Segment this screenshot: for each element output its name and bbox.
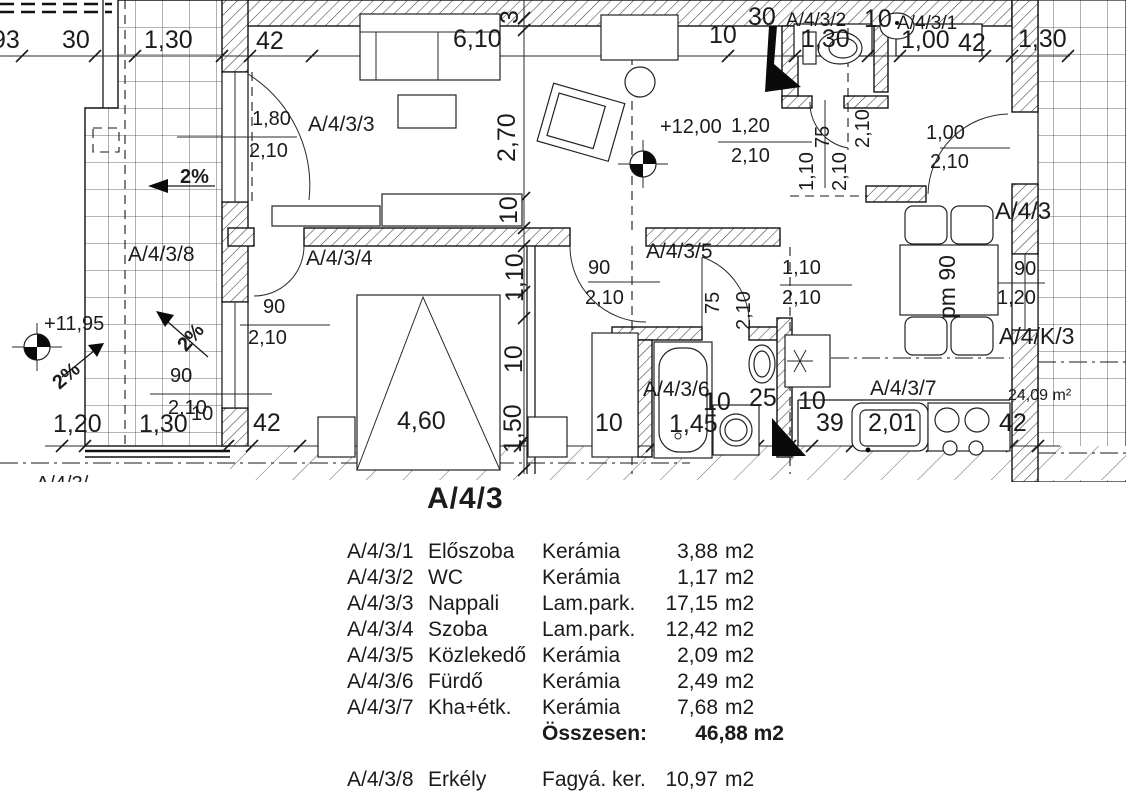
dim-label: 30	[62, 28, 90, 53]
room-label: A/4/3/6	[643, 379, 710, 400]
legend-name: WC	[428, 566, 542, 589]
chair	[951, 317, 993, 355]
legend-name: Közlekedő	[428, 644, 542, 667]
legend-row: A/4/3/3NappaliLam.park.17,15m2	[347, 592, 754, 615]
plant	[625, 67, 655, 97]
dim-label: 10	[502, 345, 527, 373]
dim-label: pm 90	[936, 255, 959, 319]
dim-label: 1,10	[797, 152, 817, 191]
armchair	[537, 83, 625, 161]
dim-label: 25	[749, 386, 777, 411]
cabinet	[601, 15, 678, 60]
legend-total-row: Összesen: 46,88 m2	[347, 722, 784, 745]
dim-label: 2,01	[868, 411, 917, 436]
dim-label: 2,10	[248, 328, 287, 348]
dim-label: 2,10	[830, 152, 850, 191]
legend-area-value: 12,42	[654, 618, 718, 641]
dim-label: 1,30	[144, 28, 193, 53]
dim-label: 42	[999, 411, 1027, 436]
legend-material: Kerámia	[542, 566, 654, 589]
legend-row: A/4/3/1ElőszobaKerámia3,88m2	[347, 540, 754, 563]
room-label: A/4/3/	[36, 474, 88, 482]
legend-area-value: 7,68	[654, 696, 718, 719]
shaft	[592, 333, 638, 457]
chair	[905, 206, 947, 244]
dim-label: 90	[1014, 259, 1036, 279]
legend-total-label: Összesen:	[542, 722, 654, 745]
legend-name: Kha+étk.	[428, 696, 542, 719]
legend-area-unit: m2	[725, 618, 754, 641]
dim-label: 3	[498, 10, 523, 24]
legend-area-value: 17,15	[654, 592, 718, 615]
legend-code: A/4/3/1	[347, 540, 428, 563]
legend-code: A/4/3/7	[347, 696, 428, 719]
legend-material: Lam.park.	[542, 618, 654, 641]
legend-area-unit: m2	[725, 768, 754, 791]
dim-label: 6,10	[453, 27, 502, 52]
dim-label: 1,50	[501, 404, 526, 453]
chair	[951, 206, 993, 244]
legend-area-unit: m2	[725, 566, 754, 589]
dim-label: 1,45	[669, 412, 718, 437]
level-marker	[618, 140, 668, 188]
dim-label: 10	[595, 411, 623, 436]
dim-label: 1,20	[53, 412, 102, 437]
legend-area-unit: m2	[725, 670, 754, 693]
dim-label: 42	[253, 411, 281, 436]
legend-area-unit: m2	[725, 540, 754, 563]
dim-label: 2%	[180, 167, 209, 187]
dim-label: 1,10	[782, 258, 821, 278]
bed	[357, 295, 500, 470]
dim-label: 1,00	[901, 28, 950, 53]
floor-plan: 93301,30426,1033010A/4/3/210A/4/3/11,301…	[0, 0, 1126, 482]
legend-row: A/4/3/8ErkélyFagyá. ker.10,97m2	[347, 768, 754, 791]
floorplan-page: 93301,30426,1033010A/4/3/210A/4/3/11,301…	[0, 0, 1126, 793]
legend-total-value: 46,88 m2	[654, 722, 784, 745]
legend-name	[428, 722, 542, 745]
dim-label: +11,95	[44, 314, 104, 334]
legend-name: Erkély	[428, 768, 542, 791]
legend-row: A/4/3/4SzobaLam.park.12,42m2	[347, 618, 754, 641]
room-label: A/4/3/3	[308, 114, 375, 135]
dim-label: 2,10	[249, 141, 288, 161]
legend-code	[347, 722, 428, 745]
dim-label: 42	[958, 31, 986, 56]
dim-label: 1,10	[503, 253, 528, 302]
legend-material: Lam.park.	[542, 592, 654, 615]
room-label: A/4/3	[995, 200, 1051, 224]
legend-code: A/4/3/5	[347, 644, 428, 667]
legend-area-value: 2,09	[654, 644, 718, 667]
dim-label: 1,30	[139, 412, 188, 437]
dim-label: 1,20	[997, 288, 1036, 308]
coffee-table	[398, 95, 456, 128]
dim-label: 42	[256, 29, 284, 54]
legend-name: Előszoba	[428, 540, 542, 563]
dim-label: 75	[703, 292, 723, 314]
dim-label: 10	[497, 196, 522, 224]
legend-row: A/4/3/7Kha+étk.Kerámia7,68m2	[347, 696, 754, 719]
legend-area-unit: m2	[725, 644, 754, 667]
legend-code: A/4/3/4	[347, 618, 428, 641]
legend-row: A/4/3/6FürdőKerámia2,49m2	[347, 670, 754, 693]
walkway-tiles	[1038, 0, 1126, 482]
dim-label: 90	[263, 297, 285, 317]
legend-name: Szoba	[428, 618, 542, 641]
dim-label: 1,30	[1018, 27, 1067, 52]
dim-label: 10	[864, 7, 892, 32]
legend-material: Kerámia	[542, 540, 654, 563]
dim-label: 1,20	[731, 116, 770, 136]
dim-label: +12,00	[660, 117, 722, 137]
dim-label: 39	[816, 411, 844, 436]
legend-material: Fagyá. ker.	[542, 768, 654, 791]
room-label: A/4/3/8	[128, 244, 195, 265]
dim-label: 2,10	[853, 109, 873, 148]
legend-area-value: 10,97	[654, 768, 718, 791]
dim-label: 2,10	[731, 146, 770, 166]
legend-row: A/4/3/5KözlekedőKerámia2,09m2	[347, 644, 754, 667]
legend-code: A/4/3/3	[347, 592, 428, 615]
dim-label: 2,10	[734, 291, 754, 330]
legend-material: Kerámia	[542, 670, 654, 693]
room-label: A/4/K/3	[999, 325, 1074, 348]
dim-label: 75	[813, 126, 833, 148]
room-label: A/4/3/5	[646, 241, 713, 262]
legend-area-value: 2,49	[654, 670, 718, 693]
legend-name: Nappali	[428, 592, 542, 615]
legend-area-unit: m2	[725, 696, 754, 719]
dim-label: 2,10	[782, 288, 821, 308]
legend-area-unit: m2	[725, 592, 754, 615]
dim-label: 90	[170, 366, 192, 386]
nightstand	[318, 417, 355, 457]
legend-code: A/4/3/8	[347, 768, 428, 791]
dim-label: 24,09 m²	[1008, 388, 1071, 404]
legend-name: Fürdő	[428, 670, 542, 693]
room-label: A/4/3/7	[870, 378, 937, 399]
chair	[905, 317, 947, 355]
legend-code: A/4/3/2	[347, 566, 428, 589]
radiator	[272, 206, 380, 226]
dim-label: 2,10	[585, 288, 624, 308]
dim-label: 4,60	[397, 409, 446, 434]
dim-label: 1,00	[926, 123, 965, 143]
dim-label: 90	[588, 258, 610, 278]
dim-label: 1,30	[801, 27, 850, 52]
legend-area-value: 3,88	[654, 540, 718, 563]
nightstand	[528, 417, 567, 457]
legend-material: Kerámia	[542, 644, 654, 667]
legend-code: A/4/3/6	[347, 670, 428, 693]
legend-area-value: 1,17	[654, 566, 718, 589]
dim-label: 93	[0, 28, 20, 53]
dim-label: 2,70	[495, 113, 520, 162]
legend-material: Kerámia	[542, 696, 654, 719]
dim-label: 2,10	[930, 152, 969, 172]
dim-label: 1,80	[252, 109, 291, 129]
plan-title: A/4/3	[427, 482, 504, 516]
room-label: A/4/3/4	[306, 248, 373, 269]
legend-row: A/4/3/2WCKerámia1,17m2	[347, 566, 754, 589]
dim-label: 10	[191, 404, 213, 424]
dim-label: 30	[748, 5, 776, 30]
dim-label: 10	[709, 23, 737, 48]
